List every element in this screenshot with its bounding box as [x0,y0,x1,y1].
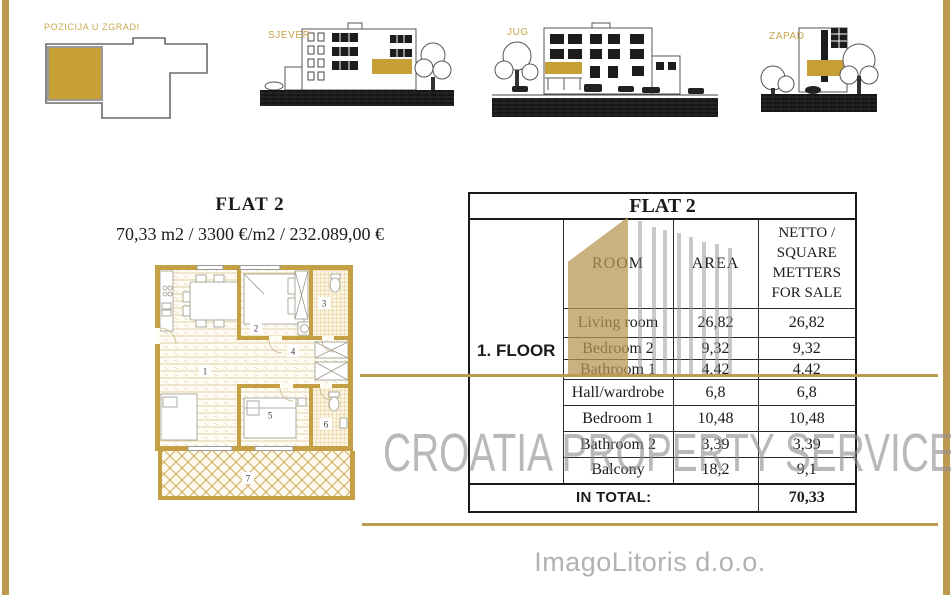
highlighted-unit [48,47,102,100]
room-number-7: 7 [246,474,251,484]
cell-netto: 6,8 [758,380,856,406]
room-number-4: 4 [291,347,296,357]
footer-company-name: ImagoLitoris d.o.o. [470,547,830,578]
highlighted-flat-south [545,62,582,74]
room-number-1: 1 [203,367,208,377]
room-number-6: 6 [324,420,329,430]
west-elevation-label: ZAPAD [769,31,805,42]
total-value: 70,33 [758,484,856,512]
highlighted-flat-west [807,60,845,76]
cell-netto: 26,82 [758,309,856,338]
room-number-3: 3 [322,299,327,309]
position-in-building-thumbnail [40,20,220,120]
cell-netto: 9,32 [758,338,856,360]
table-total-row: IN TOTAL: 70,33 [469,484,856,512]
watermark-text: CROATIA PROPERTY SERVICE [383,422,951,484]
column-header-netto: NETTO / SQUARE METTERS FOR SALE [758,219,856,309]
room-number-2: 2 [254,324,259,334]
gold-divider-upper [360,374,938,377]
flat-price-line: 70,33 m2 / 3300 €/m2 / 232.089,00 € [80,224,420,245]
highlighted-flat-north [372,59,412,74]
north-elevation-label: SJEVER [268,30,311,41]
room-number-5: 5 [268,411,273,421]
right-gold-frame-bar [943,0,950,595]
total-label: IN TOTAL: [469,484,758,512]
cell-room: Hall/wardrobe [563,380,673,406]
gold-divider-lower [362,523,938,526]
left-gold-frame-bar [2,0,9,595]
cell-area: 6,8 [673,380,758,406]
position-in-building-label: POZICIJA U ZGRADI [44,22,140,32]
south-elevation-label: JUG [507,27,529,38]
floor-plan: 1 2 3 4 5 6 7 [152,258,360,504]
flat-title: FLAT 2 [90,194,410,216]
table-title: FLAT 2 [469,193,856,219]
property-sheet-page: POZICIJA U ZGRADI SJEVER JUG ZAPAD [0,0,951,595]
